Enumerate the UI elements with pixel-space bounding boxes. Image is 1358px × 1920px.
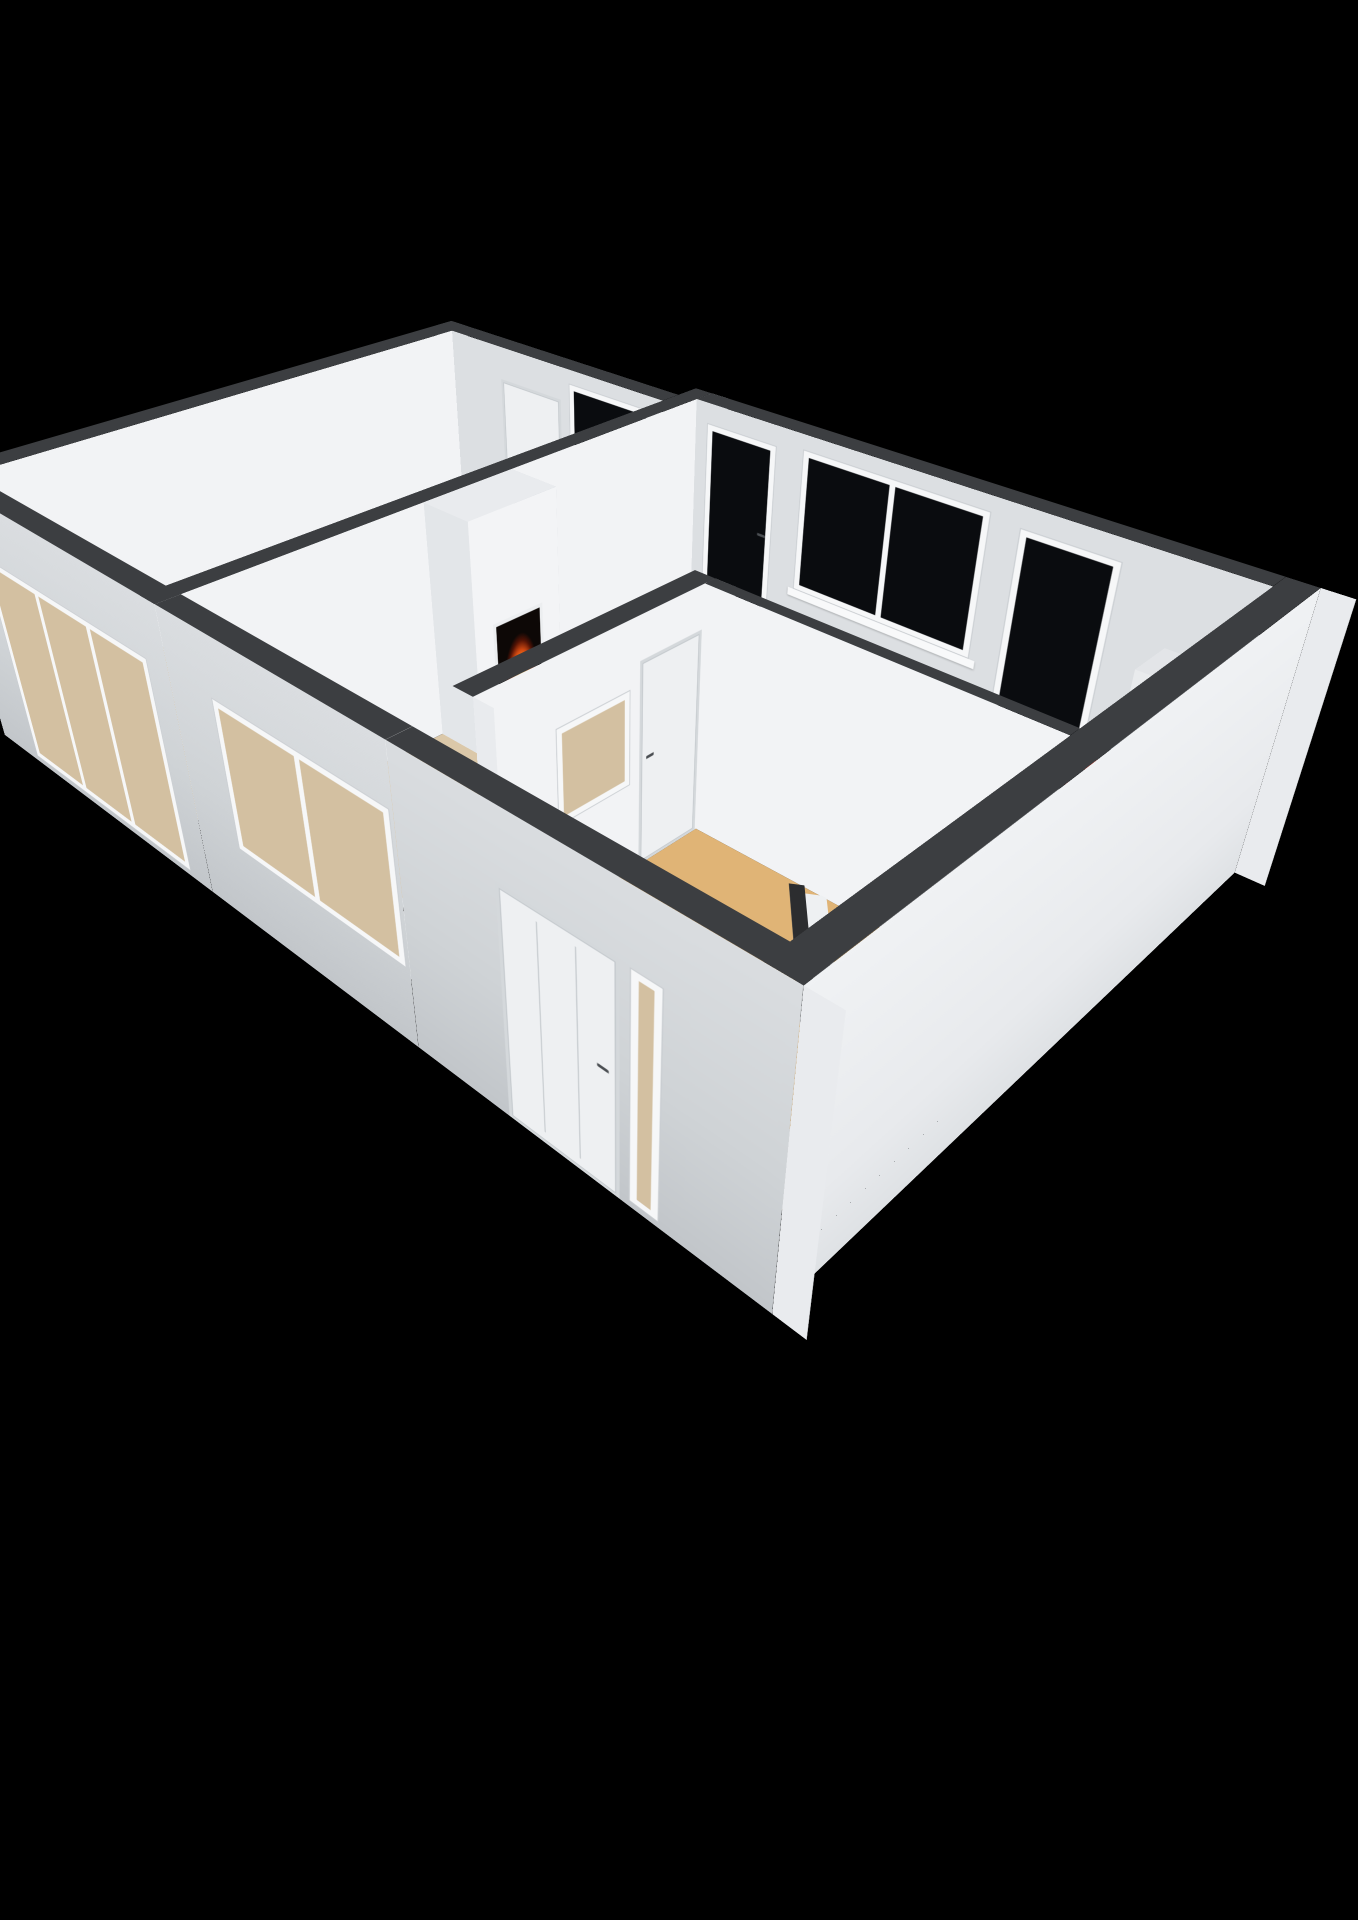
living-sw-window xyxy=(211,697,406,968)
window-mullion xyxy=(294,756,320,901)
window-mullion xyxy=(86,626,136,824)
window-glass xyxy=(562,700,625,816)
entry-sidelight xyxy=(629,967,664,1223)
window-mullion xyxy=(35,594,87,788)
window-glass xyxy=(637,981,655,1210)
window-mullion xyxy=(875,485,895,617)
door-handle-icon xyxy=(597,1063,609,1074)
door-seam xyxy=(536,921,546,1133)
floorplan-3d-stage xyxy=(0,0,1358,1920)
hall-door xyxy=(638,629,701,865)
door-seam xyxy=(574,946,580,1159)
door-handle-icon xyxy=(646,752,654,759)
window-glass xyxy=(218,708,399,956)
window-glass-dark xyxy=(799,458,983,650)
entry-door xyxy=(495,882,619,1199)
hall-interior-window xyxy=(556,690,631,827)
